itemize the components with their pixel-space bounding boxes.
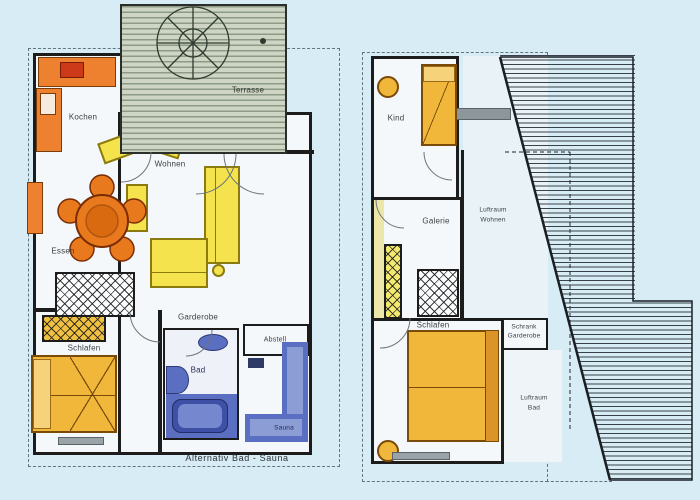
gallery-railing bbox=[384, 244, 402, 319]
stove-icon bbox=[60, 62, 84, 78]
sofa-bottom bbox=[150, 238, 208, 288]
label-luftraum-wohnen-2: Wohnen bbox=[480, 217, 505, 224]
label-abstell: Abstell bbox=[264, 337, 286, 344]
sink-icon bbox=[166, 366, 189, 394]
stool-icon bbox=[377, 76, 399, 98]
label-schlafen-upper: Schlafen bbox=[417, 321, 450, 330]
label-schrank-1: Schrank bbox=[511, 324, 536, 331]
bedroom-bench bbox=[392, 452, 450, 460]
label-luftraum-bad-2: Bad bbox=[528, 405, 540, 412]
label-essen: Essen bbox=[51, 247, 74, 256]
bed-blanket-pattern bbox=[70, 357, 115, 431]
gallery-east-wall bbox=[461, 150, 464, 321]
coffee-table bbox=[126, 184, 148, 232]
label-luftraum-wohnen-1: Luftraum bbox=[479, 207, 506, 214]
sofa-right bbox=[204, 166, 240, 264]
label-wohnen: Wohnen bbox=[155, 160, 186, 169]
storage-shelf bbox=[248, 358, 264, 368]
label-terrasse: Terrasse bbox=[232, 86, 264, 95]
label-schlafen-ground: Schlafen bbox=[68, 344, 101, 353]
floor-plan-scan: Terrasse Kochen Wohnen Essen Schlafen Ga… bbox=[0, 0, 700, 500]
label-kochen: Kochen bbox=[69, 113, 97, 122]
label-alt-note: Alternativ Bad - Sauna bbox=[185, 453, 288, 463]
child-bed-pillow bbox=[423, 66, 455, 82]
bedroom-east-wall bbox=[158, 310, 162, 455]
label-sauna: Sauna bbox=[274, 425, 294, 432]
label-bad: Bad bbox=[191, 366, 206, 375]
bed-bench bbox=[58, 437, 104, 445]
terrace-deck bbox=[120, 4, 287, 154]
label-garderobe: Garderobe bbox=[178, 313, 218, 322]
bed-headboard bbox=[485, 330, 499, 442]
dining-sideboard bbox=[27, 182, 43, 234]
roof-beam bbox=[455, 108, 511, 120]
bathtub-inner bbox=[178, 404, 222, 428]
toilet-icon bbox=[198, 334, 228, 351]
label-luftraum-bad-1: Luftraum bbox=[520, 395, 547, 402]
bed-pillow bbox=[33, 359, 51, 429]
stairs-ground-floor bbox=[55, 272, 135, 317]
label-galerie: Galerie bbox=[422, 217, 449, 226]
label-schrank-2: Garderobe bbox=[508, 333, 541, 340]
stairs-upper-floor bbox=[417, 269, 459, 317]
label-kind: Kind bbox=[388, 114, 405, 123]
right-boundary-bottom-ext bbox=[546, 481, 612, 482]
round-side-table-icon bbox=[212, 264, 225, 277]
gallery-wall-strip bbox=[374, 200, 384, 318]
wardrobe bbox=[42, 315, 106, 342]
sink-basin-icon bbox=[40, 93, 56, 115]
